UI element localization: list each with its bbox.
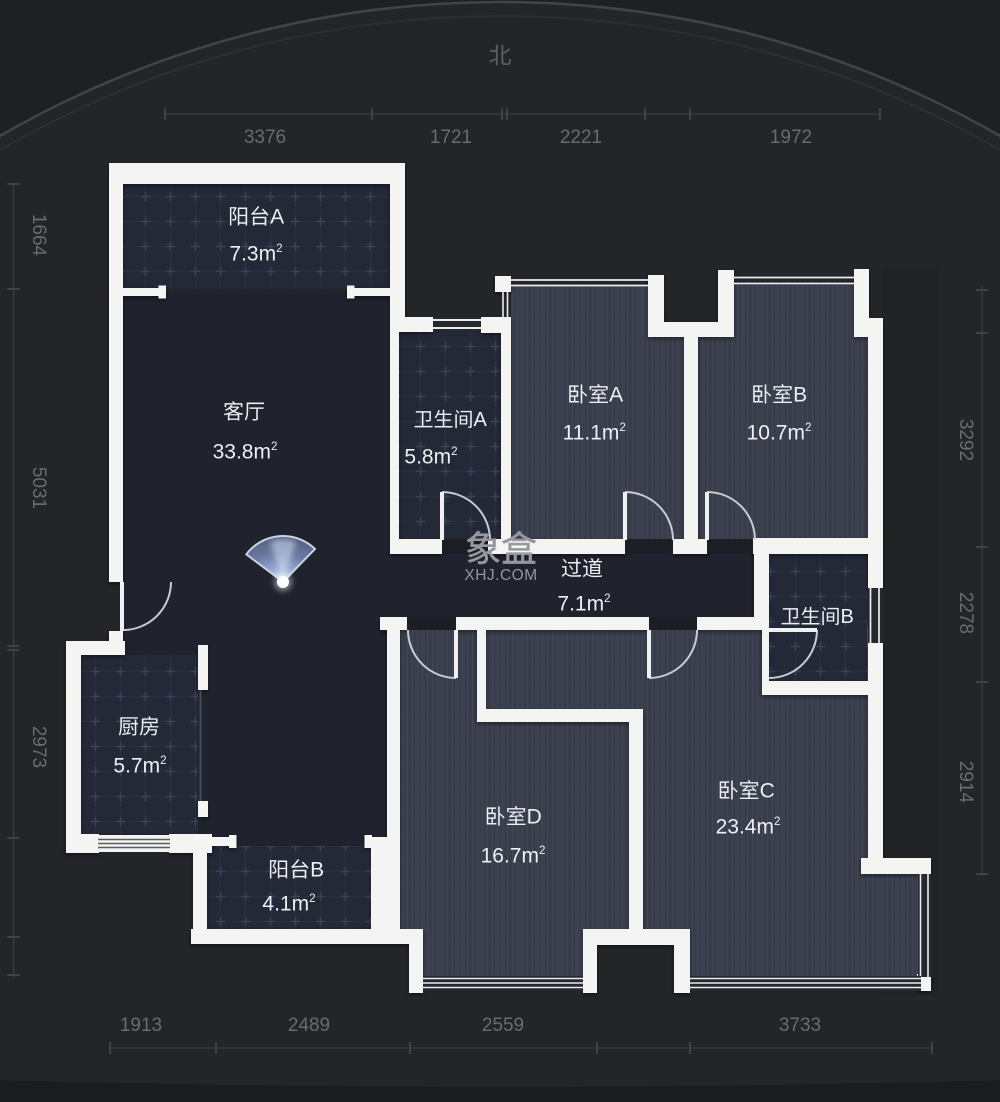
svg-text:23.4m2: 23.4m2 xyxy=(716,815,781,839)
svg-text:7.1m2: 7.1m2 xyxy=(557,592,610,616)
svg-text:3376: 3376 xyxy=(244,127,286,148)
svg-text:16.7m2: 16.7m2 xyxy=(481,844,546,868)
svg-text:1972: 1972 xyxy=(770,127,812,148)
svg-text:B: B xyxy=(310,858,324,881)
svg-text:33.8m2: 33.8m2 xyxy=(213,440,278,464)
svg-text:D: D xyxy=(527,805,542,828)
svg-text:7.3m2: 7.3m2 xyxy=(229,242,282,266)
svg-text:1664: 1664 xyxy=(28,214,49,257)
svg-text:A: A xyxy=(609,383,623,406)
svg-text:2489: 2489 xyxy=(288,1015,330,1036)
svg-text:5.7m2: 5.7m2 xyxy=(113,754,166,778)
svg-text:XHJ.COM: XHJ.COM xyxy=(464,567,537,584)
svg-text:3292: 3292 xyxy=(955,419,976,461)
svg-text:4.1m2: 4.1m2 xyxy=(262,892,315,916)
svg-text:10.7m2: 10.7m2 xyxy=(747,421,812,445)
svg-text:3733: 3733 xyxy=(779,1015,821,1036)
svg-text:1721: 1721 xyxy=(430,127,472,148)
svg-text:A: A xyxy=(474,409,488,431)
svg-text:5031: 5031 xyxy=(28,467,49,509)
svg-text:2559: 2559 xyxy=(482,1015,524,1036)
svg-text:2278: 2278 xyxy=(955,592,976,634)
svg-text:A: A xyxy=(270,205,284,228)
svg-text:B: B xyxy=(793,383,807,406)
svg-text:2221: 2221 xyxy=(560,127,602,148)
svg-text:2914: 2914 xyxy=(955,761,976,804)
svg-text:1913: 1913 xyxy=(120,1015,162,1036)
svg-text:2973: 2973 xyxy=(28,726,49,768)
svg-text:5.8m2: 5.8m2 xyxy=(404,445,457,469)
svg-text:B: B xyxy=(841,606,854,628)
svg-text:11.1m2: 11.1m2 xyxy=(563,421,626,445)
svg-text:C: C xyxy=(760,779,775,802)
